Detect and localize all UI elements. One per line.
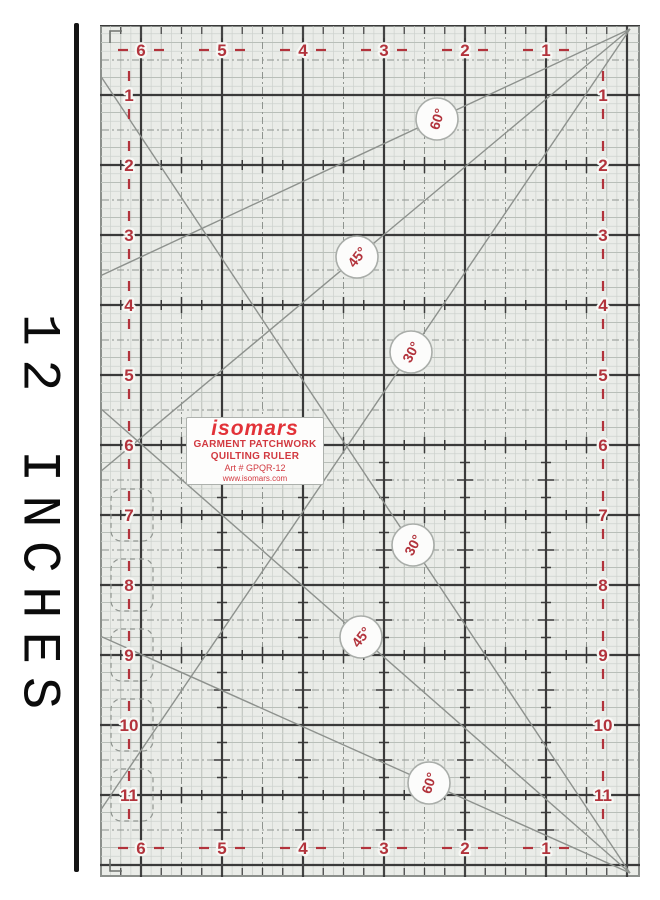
brand-label: isomars GARMENT PATCHWORK QUILTING RULER… [186, 417, 324, 485]
svg-text:3: 3 [379, 41, 388, 60]
brand-tagline2: QUILTING RULER [211, 451, 299, 463]
svg-text:4: 4 [124, 296, 134, 315]
svg-text:3: 3 [379, 839, 388, 858]
angle-badge: 30° [392, 524, 434, 566]
svg-text:10: 10 [120, 716, 139, 735]
svg-text:8: 8 [124, 576, 133, 595]
svg-text:7: 7 [598, 506, 607, 525]
svg-text:5: 5 [124, 366, 133, 385]
brand-logo: isomars [211, 418, 299, 439]
svg-text:10: 10 [594, 716, 613, 735]
svg-text:5: 5 [217, 839, 226, 858]
svg-text:5: 5 [217, 41, 226, 60]
svg-text:6: 6 [124, 436, 133, 455]
brand-website: www.isomars.com [223, 474, 287, 484]
svg-text:7: 7 [124, 506, 133, 525]
angle-badge: 45° [336, 236, 378, 278]
svg-text:6: 6 [598, 436, 607, 455]
svg-text:2: 2 [124, 156, 133, 175]
svg-text:2: 2 [598, 156, 607, 175]
svg-text:1: 1 [124, 86, 133, 105]
length-bracket-line [74, 23, 79, 872]
angle-badge: 60° [408, 762, 450, 804]
svg-text:2: 2 [460, 839, 469, 858]
angle-badge: 45° [340, 616, 382, 658]
svg-text:3: 3 [598, 226, 607, 245]
svg-text:9: 9 [124, 646, 133, 665]
svg-text:11: 11 [120, 786, 138, 805]
svg-text:4: 4 [298, 839, 308, 858]
svg-text:2: 2 [460, 41, 469, 60]
brand-art-number: Art # GPQR-12 [224, 463, 285, 474]
svg-text:4: 4 [298, 41, 308, 60]
svg-text:11: 11 [594, 786, 612, 805]
svg-text:1: 1 [598, 86, 607, 105]
svg-text:6: 6 [136, 41, 145, 60]
svg-text:6: 6 [136, 839, 145, 858]
brand-tagline1: GARMENT PATCHWORK [193, 439, 316, 451]
product-photo: 12 INCHES 60°45°30°30°45°60°654321654321… [0, 0, 660, 900]
svg-text:5: 5 [598, 366, 607, 385]
angle-badge: 60° [416, 98, 458, 140]
angle-badge: 30° [390, 331, 432, 373]
quilting-ruler: 60°45°30°30°45°60°6543216543211234567891… [100, 25, 640, 877]
svg-text:1: 1 [541, 839, 550, 858]
svg-text:1: 1 [541, 41, 550, 60]
ruler-length-label: 12 INCHES [8, 314, 69, 723]
svg-text:9: 9 [598, 646, 607, 665]
svg-text:4: 4 [598, 296, 608, 315]
svg-text:3: 3 [124, 226, 133, 245]
svg-text:8: 8 [598, 576, 607, 595]
